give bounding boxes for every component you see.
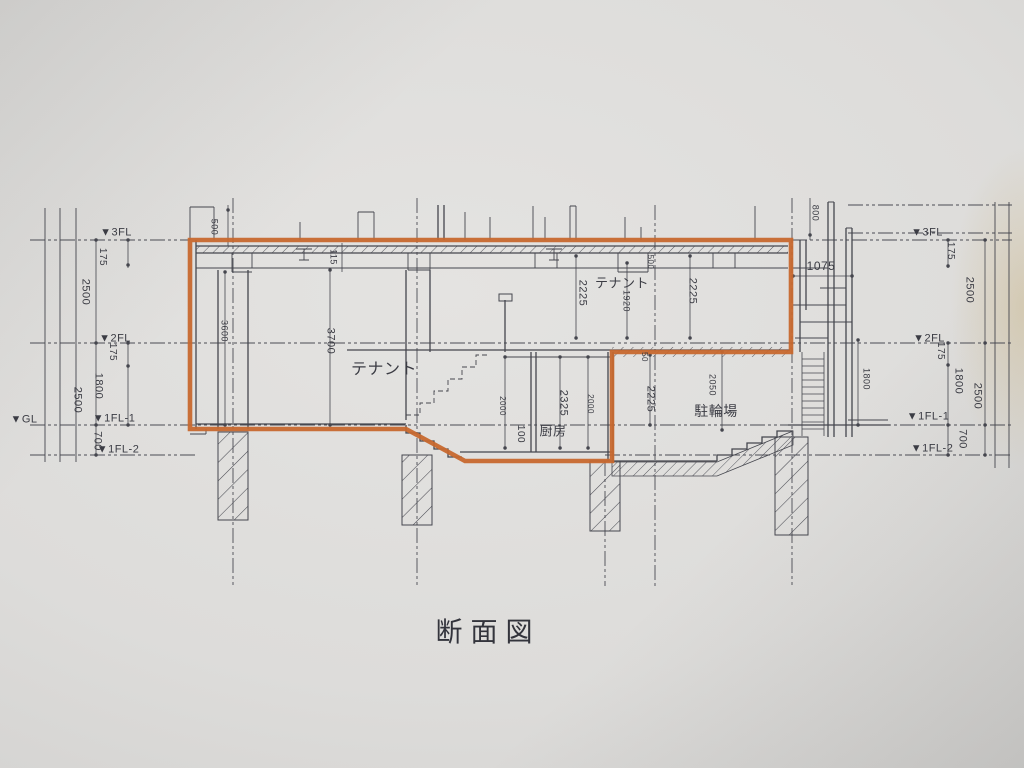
dim-1800-left: 1800 bbox=[93, 373, 104, 399]
marker-1fl2-right: ▼1FL-2 bbox=[911, 444, 954, 455]
marker-1fl2-left: ▼1FL-2 bbox=[97, 445, 140, 456]
dim-175-upper-right: 175 bbox=[945, 242, 955, 260]
dim-2500-upper-right: 2500 bbox=[964, 277, 975, 303]
marker-1fl1-left: ▼1FL-1 bbox=[93, 414, 136, 425]
dim-100: 100 bbox=[515, 425, 525, 443]
marker-3fl-left: ▼3FL bbox=[100, 228, 132, 239]
drawing-title: 断面図 bbox=[436, 620, 541, 647]
dim-2000-right: 2000 bbox=[586, 394, 594, 414]
marker-1fl1-right: ▼1FL-1 bbox=[907, 412, 950, 423]
dim-2500-lower-left: 2500 bbox=[72, 387, 83, 413]
dim-1075: 1075 bbox=[807, 260, 836, 272]
roof-slab-hatch bbox=[196, 246, 788, 253]
label-kitchen: 厨房 bbox=[539, 425, 566, 438]
dim-3700: 3700 bbox=[325, 328, 336, 354]
dim-1920: 1920 bbox=[622, 290, 631, 312]
marker-gl-left: ▼GL bbox=[10, 415, 37, 426]
dim-2225-2f-left: 2225 bbox=[577, 280, 588, 306]
section-drawing: ▼3FL1752500▼2FL17518002500▼GL▼1FL-1700▼1… bbox=[0, 0, 1024, 768]
label-tenant-1f: テナント bbox=[351, 362, 417, 378]
dim-500-left: 500 bbox=[210, 219, 219, 236]
dim-2050: 2050 bbox=[708, 374, 717, 396]
dim-500-2f: 500 bbox=[646, 255, 654, 270]
handrail-post-cap bbox=[499, 294, 512, 301]
bike-slab-hatch bbox=[612, 431, 793, 476]
grid-centerlines bbox=[30, 198, 1012, 586]
foundation-column-4 bbox=[775, 437, 808, 535]
label-tenant-2f: テナント bbox=[595, 277, 649, 290]
foundation-column-1 bbox=[218, 432, 248, 520]
dim-800: 800 bbox=[811, 205, 820, 222]
foundation-column-2 bbox=[402, 455, 432, 525]
dim-2225-2f-right: 2225 bbox=[687, 278, 698, 304]
dim-2225-bike: 2225 bbox=[645, 386, 656, 412]
dim-2500-lower-right: 2500 bbox=[972, 383, 983, 409]
dim-2325: 2325 bbox=[558, 390, 569, 416]
dim-175-lower-right: 175 bbox=[935, 342, 945, 360]
foundation-column-3 bbox=[590, 461, 620, 531]
dim-2000-left: 2000 bbox=[498, 396, 506, 416]
ladder bbox=[802, 352, 824, 436]
dim-175-lower-left: 175 bbox=[107, 343, 117, 361]
marker-3fl-right: ▼3FL bbox=[911, 228, 943, 239]
dim-3600: 3600 bbox=[220, 320, 229, 342]
stair-dashed bbox=[406, 355, 490, 415]
label-bicycle-parking: 駐輪場 bbox=[694, 404, 738, 418]
dim-2500-upper-left: 2500 bbox=[80, 279, 91, 305]
dim-1800-stair: 1800 bbox=[862, 368, 871, 390]
dim-1800-right: 1800 bbox=[953, 368, 964, 394]
dim-700-right: 700 bbox=[957, 429, 968, 449]
dim-50: 50 bbox=[640, 352, 648, 362]
dim-175-upper-left: 175 bbox=[97, 248, 107, 266]
photo-background: ▼3FL1752500▼2FL17518002500▼GL▼1FL-1700▼1… bbox=[0, 0, 1024, 768]
dim-115: 115 bbox=[329, 249, 338, 265]
foundation-columns bbox=[218, 432, 808, 535]
